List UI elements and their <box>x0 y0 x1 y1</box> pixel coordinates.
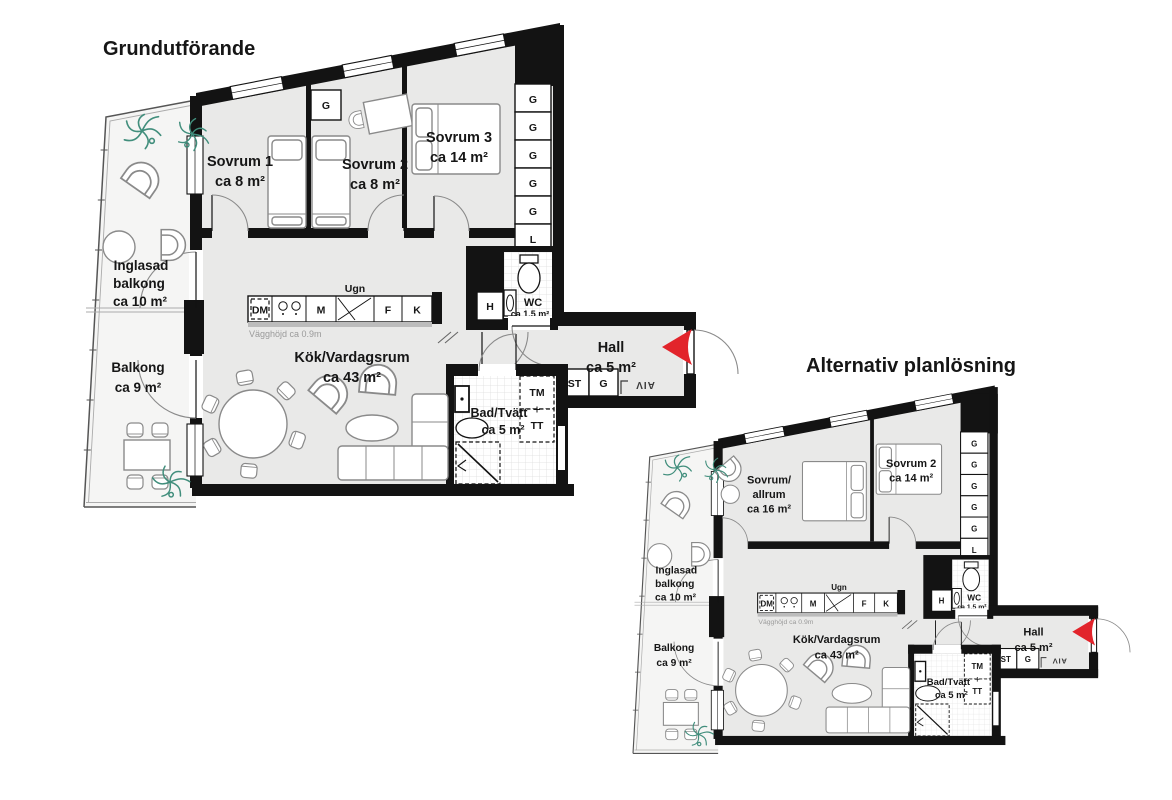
closet-label: G <box>971 524 977 533</box>
closet-st-label: ST <box>568 378 582 390</box>
coffee-table-icon <box>832 683 872 703</box>
kok-area: ca 43 m² <box>323 370 381 386</box>
balcony-chair-icon <box>161 230 185 261</box>
sovrum1-bed-icon <box>268 136 306 228</box>
window <box>711 690 723 730</box>
wall-height-note: Vägghöjd ca 0.9m <box>758 619 813 626</box>
k-label: K <box>883 599 889 608</box>
tm-label: TM <box>972 662 984 671</box>
ugn-label: Ugn <box>831 583 847 592</box>
closet-h-label: H <box>486 301 494 313</box>
closet-st-label: ST <box>1001 655 1011 664</box>
m-label: M <box>810 599 817 608</box>
wc-label: WC <box>967 593 981 603</box>
balkong-area: ca 9 m² <box>115 380 162 395</box>
closet-g-label: G <box>599 378 607 390</box>
closet-label: G <box>529 122 537 134</box>
balcony-table-icon <box>647 544 671 568</box>
toilet-icon <box>963 562 980 591</box>
closet-label: G <box>529 94 537 106</box>
sovrum-allrum-area: ca 16 m² <box>747 503 791 515</box>
closet-label: G <box>529 206 537 218</box>
allrum-bed-icon <box>802 462 866 521</box>
sovrum-allrum-label1: Sovrum/ <box>747 475 791 487</box>
wc-label: WC <box>524 297 542 309</box>
f-label: F <box>862 599 867 608</box>
bath-door-gap <box>478 364 516 376</box>
floorplan-canvas: Grundutförande <box>0 0 1172 800</box>
toilet-icon <box>518 255 540 293</box>
svg-text:AIV: AIV <box>635 379 655 390</box>
sovrum3-area: ca 14 m² <box>430 150 488 166</box>
sovrum2-area: ca 14 m² <box>889 472 933 484</box>
balkong-label: Balkong <box>111 360 164 375</box>
hall-area: ca 5 m² <box>586 360 636 376</box>
f-label: F <box>385 305 392 317</box>
hall-label: Hall <box>1023 627 1043 639</box>
plan-grundutforande: G G G G G L H WC ca 1.5 m² ST <box>84 23 738 507</box>
sovrum2-bed-icon <box>312 136 350 228</box>
inglasad-balkong-label1: Inglasad <box>656 565 698 576</box>
sovrum1-label: Sovrum 1 <box>207 154 273 170</box>
kok-label: Kök/Vardagsrum <box>294 350 409 366</box>
bath-door-gap <box>932 645 961 654</box>
svg-text:AIV: AIV <box>1052 656 1067 665</box>
tt-label: TT <box>531 420 544 432</box>
inglasad-balkong-label2: balkong <box>113 276 165 291</box>
inglasad-balkong-area: ca 10 m² <box>113 294 168 309</box>
sovrum2-label: Sovrum 2 <box>886 458 936 470</box>
linen-closet-label: L <box>972 546 977 555</box>
hall-label: Hall <box>598 340 625 356</box>
floorplan-document: Grundutförande <box>0 0 1172 800</box>
wc-door-gap <box>508 316 550 330</box>
window <box>187 424 203 476</box>
coffee-table-icon <box>346 415 398 441</box>
ugn-label: Ugn <box>345 283 365 295</box>
balkong-label: Balkong <box>654 643 694 654</box>
wc-door-gap <box>955 608 987 619</box>
bad-tvatt-label: Bad/Tvätt <box>471 406 529 420</box>
kok-area: ca 43 m² <box>815 649 859 661</box>
bad-tvatt-area: ca 5 m² <box>481 423 524 437</box>
tm-label: TM <box>529 387 544 399</box>
wall-height-note: Vägghöjd ca 0.9m <box>249 329 322 339</box>
exterior-wall-bottom <box>192 484 574 496</box>
sovrum-allrum-label2: allrum <box>753 489 786 501</box>
closet-g-label: G <box>1025 655 1031 664</box>
allrum-table-icon <box>721 485 739 503</box>
sovrum2-label: Sovrum 2 <box>342 157 408 173</box>
wall-niche <box>558 426 565 470</box>
exterior-wall-bottom <box>715 736 1005 745</box>
inglasad-balkong-label1: Inglasad <box>114 258 169 273</box>
closet-label: G <box>971 503 977 512</box>
closet-label: G <box>529 150 537 162</box>
bath-cabinet-icon <box>455 386 469 412</box>
linen-closet-label: L <box>530 234 537 246</box>
dm-label: DM <box>252 305 269 317</box>
balcony-chair-icon <box>692 543 710 566</box>
bad-tvatt-label: Bad/Tvätt <box>927 677 971 688</box>
tt-label: TT <box>972 687 982 696</box>
dm-label: DM <box>761 599 774 608</box>
sovrum3-label: Sovrum 3 <box>426 130 492 146</box>
inglasad-balkong-area: ca 10 m² <box>655 593 697 604</box>
closet-g-label: G <box>322 100 330 112</box>
inglasad-balkong-label2: balkong <box>655 579 694 590</box>
closet-label: G <box>971 461 977 470</box>
balkong-area: ca 9 m² <box>656 658 692 669</box>
bad-tvatt-area: ca 5 m² <box>935 690 968 701</box>
sovrum2-area: ca 8 m² <box>350 177 400 193</box>
closet-label: G <box>529 178 537 190</box>
kok-label: Kök/Vardagsrum <box>793 634 881 646</box>
closet-h-label: H <box>939 597 945 606</box>
wall-niche <box>993 692 998 725</box>
closet-label: G <box>971 482 977 491</box>
closet-label: G <box>971 439 977 448</box>
plan-alternativ: G G G G G L H WC ca 1.5 m² ST G <box>633 386 1130 754</box>
k-label: K <box>413 305 421 317</box>
plan2-title: Alternativ planlösning <box>806 355 1016 377</box>
m-label: M <box>317 305 326 317</box>
hall-area: ca 5 m² <box>1015 642 1053 654</box>
sovrum1-area: ca 8 m² <box>215 174 265 190</box>
wall-sovrum1-sovrum2 <box>306 85 311 228</box>
wall-allrum-sovrum2 <box>870 418 874 541</box>
bath-cabinet-icon <box>915 661 926 681</box>
plan1-title: Grundutförande <box>103 38 255 60</box>
